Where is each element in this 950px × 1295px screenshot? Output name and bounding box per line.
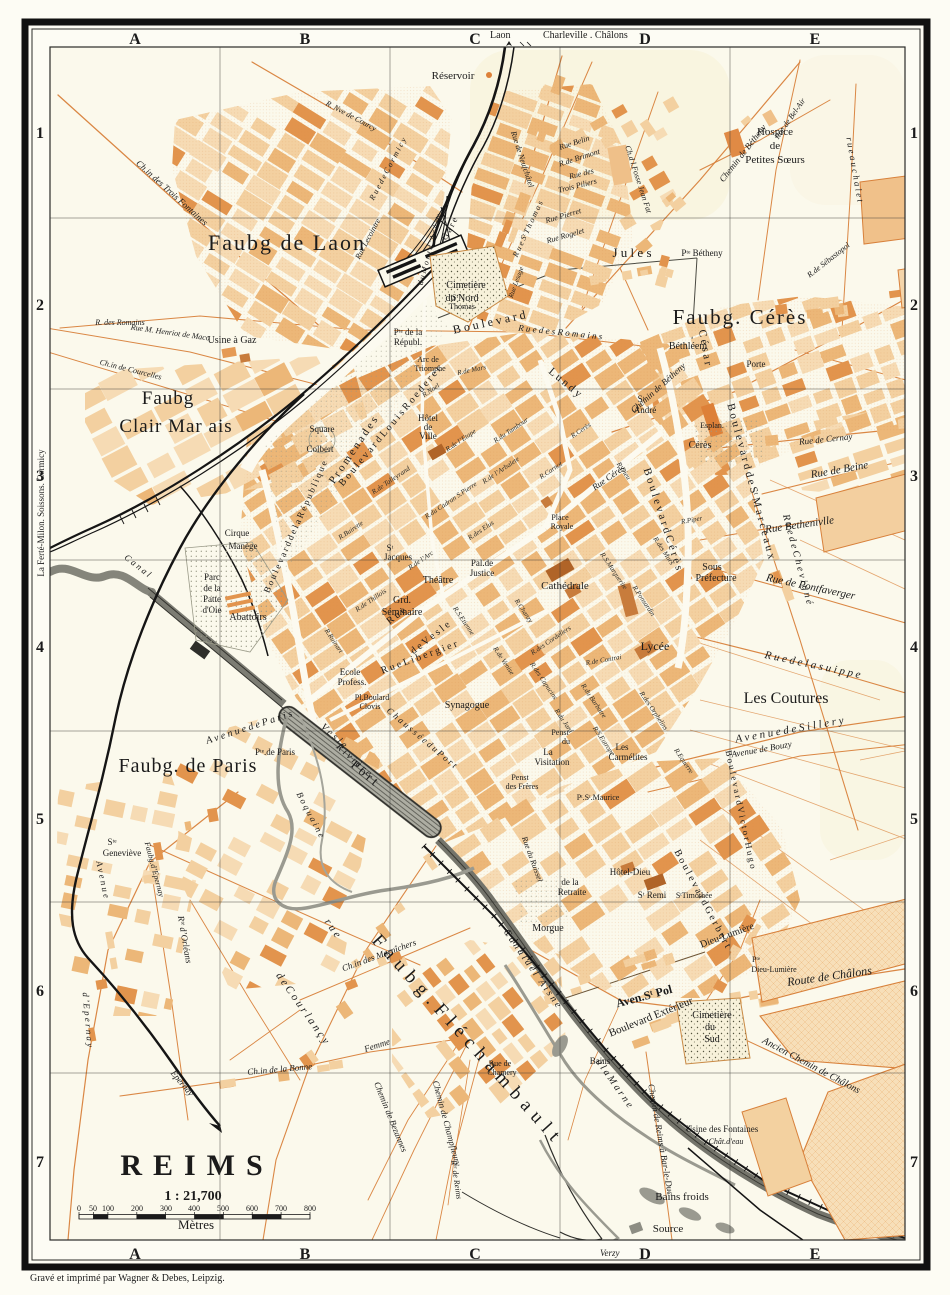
- svg-text:200: 200: [131, 1204, 143, 1213]
- svg-text:Profess.: Profess.: [338, 677, 367, 687]
- svg-text:1: 1: [910, 125, 918, 142]
- svg-text:Colbert: Colbert: [307, 444, 334, 454]
- svg-text:Faubg: Faubg: [142, 388, 195, 409]
- svg-text:de la: de la: [561, 877, 578, 887]
- svg-text:3: 3: [910, 468, 918, 485]
- svg-text:du: du: [562, 737, 570, 746]
- svg-text:1: 1: [36, 125, 44, 142]
- svg-text:R. des Romains: R. des Romains: [94, 318, 145, 327]
- svg-text:Cathédrale: Cathédrale: [541, 580, 589, 592]
- svg-text:des Frères: des Frères: [506, 782, 539, 791]
- svg-text:de: de: [770, 140, 781, 152]
- svg-text:Esplan.: Esplan.: [700, 421, 724, 430]
- svg-text:Gravé et imprimé par Wagner &: Gravé et imprimé par Wagner & Debes, Lei…: [30, 1273, 225, 1284]
- svg-text:Mètres: Mètres: [178, 1217, 214, 1232]
- svg-text:Pᵗᵉ de la: Pᵗᵉ de la: [394, 327, 423, 337]
- svg-text:Chât.d'eau: Chât.d'eau: [709, 1137, 744, 1146]
- svg-text:E: E: [810, 31, 821, 48]
- svg-text:D: D: [639, 1246, 651, 1263]
- svg-text:Arc de: Arc de: [417, 355, 439, 364]
- svg-text:Républ.: Républ.: [394, 337, 422, 347]
- svg-text:0: 0: [77, 1204, 81, 1213]
- svg-text:Faubg. Cérès: Faubg. Cérès: [673, 305, 808, 329]
- svg-text:B: B: [300, 1246, 311, 1263]
- svg-text:Théâtre: Théâtre: [423, 575, 454, 586]
- svg-text:B: B: [300, 31, 311, 48]
- svg-text:Faubg de Laon: Faubg de Laon: [208, 230, 366, 255]
- svg-text:Chamery: Chamery: [487, 1068, 516, 1077]
- svg-text:6: 6: [36, 983, 44, 1000]
- svg-text:Parc: Parc: [204, 572, 220, 582]
- svg-text:Porte: Porte: [747, 359, 766, 369]
- svg-text:A: A: [129, 31, 141, 48]
- svg-text:Pᵗ.Sᵗ.Maurice: Pᵗ.Sᵗ.Maurice: [577, 793, 620, 802]
- svg-text:Ville: Ville: [419, 431, 436, 441]
- svg-text:REIMS: REIMS: [120, 1149, 273, 1182]
- svg-text:Bains froids: Bains froids: [655, 1191, 708, 1203]
- svg-text:50: 50: [89, 1204, 97, 1213]
- svg-text:Ecole: Ecole: [340, 667, 361, 677]
- svg-text:Sud: Sud: [704, 1034, 720, 1045]
- svg-text:Petites Sœurs: Petites Sœurs: [745, 154, 805, 166]
- svg-text:Sᵗᵉ: Sᵗᵉ: [107, 837, 117, 847]
- svg-text:Manège: Manège: [229, 541, 258, 551]
- svg-text:Les Coutures: Les Coutures: [744, 690, 829, 707]
- svg-text:de la: de la: [203, 583, 220, 593]
- svg-text:Sᵗ Remi: Sᵗ Remi: [638, 890, 667, 900]
- svg-text:Cérès: Cérès: [689, 440, 712, 451]
- svg-text:Usine des Fontaines: Usine des Fontaines: [686, 1124, 759, 1134]
- svg-text:Lycée: Lycée: [641, 639, 670, 653]
- svg-text:Cirque: Cirque: [225, 528, 250, 538]
- svg-text:Verzy: Verzy: [600, 1248, 620, 1258]
- svg-text:Dieu-Lumière: Dieu-Lumière: [751, 965, 797, 974]
- svg-text:Pl.Boulard: Pl.Boulard: [355, 693, 389, 702]
- svg-text:Pal.de: Pal.de: [471, 558, 493, 568]
- svg-text:Cimetière: Cimetière: [446, 280, 486, 291]
- svg-text:600: 600: [246, 1204, 258, 1213]
- svg-text:1 : 21,700: 1 : 21,700: [164, 1189, 221, 1204]
- svg-text:du: du: [705, 1022, 715, 1033]
- svg-text:5: 5: [36, 811, 44, 828]
- svg-text:J u l e s: J u l e s: [613, 245, 652, 260]
- svg-text:7: 7: [36, 1154, 44, 1171]
- svg-text:Royale: Royale: [551, 522, 574, 531]
- svg-text:Pᵗᵉ Bétheny: Pᵗᵉ Bétheny: [681, 248, 723, 258]
- svg-text:E: E: [810, 1246, 821, 1263]
- svg-text:Morgue: Morgue: [532, 923, 564, 934]
- svg-text:800: 800: [304, 1204, 316, 1213]
- svg-text:Faubg. de Paris: Faubg. de Paris: [119, 755, 258, 777]
- svg-text:4: 4: [36, 639, 44, 656]
- svg-text:700: 700: [275, 1204, 287, 1213]
- svg-text:400: 400: [188, 1204, 200, 1213]
- svg-text:Penst: Penst: [511, 773, 529, 782]
- svg-text:Cimetière: Cimetière: [692, 1010, 732, 1021]
- svg-text:Pᵗᵉ: Pᵗᵉ: [752, 955, 760, 964]
- svg-text:Préfecture: Préfecture: [695, 573, 737, 584]
- svg-text:La Ferté-Milon. Soissons. Corm: La Ferté-Milon. Soissons. Cormicy: [36, 449, 46, 577]
- svg-text:Jacques: Jacques: [384, 552, 412, 562]
- svg-text:Abattoirs: Abattoirs: [229, 612, 266, 623]
- svg-text:2: 2: [910, 297, 918, 314]
- svg-text:A: A: [129, 1246, 141, 1263]
- svg-text:4: 4: [910, 639, 918, 656]
- svg-text:300: 300: [160, 1204, 172, 1213]
- svg-text:Les: Les: [616, 742, 629, 752]
- svg-text:7: 7: [910, 1154, 918, 1171]
- svg-text:Pᵗᵉ.de Paris: Pᵗᵉ.de Paris: [255, 747, 296, 757]
- svg-text:Hôtel-Dieu: Hôtel-Dieu: [610, 867, 651, 877]
- svg-text:d'Oie: d'Oie: [202, 605, 221, 615]
- svg-text:100: 100: [102, 1204, 114, 1213]
- svg-text:Thomas: Thomas: [449, 302, 475, 311]
- svg-text:Grd.: Grd.: [393, 595, 411, 606]
- svg-text:Visitation: Visitation: [535, 757, 570, 767]
- svg-text:Laon: Laon: [490, 30, 511, 41]
- svg-text:5: 5: [910, 811, 918, 828]
- svg-text:C: C: [469, 31, 481, 48]
- svg-text:Synagogue: Synagogue: [445, 700, 490, 711]
- svg-text:Square: Square: [310, 424, 335, 434]
- svg-text:6: 6: [910, 983, 918, 1000]
- svg-text:Geneviève: Geneviève: [103, 848, 141, 858]
- svg-text:SᵗTimothée: SᵗTimothée: [676, 891, 713, 900]
- svg-text:Sᵗ: Sᵗ: [452, 293, 458, 302]
- svg-text:Sous: Sous: [702, 562, 722, 573]
- svg-text:Triomphe: Triomphe: [414, 364, 446, 373]
- svg-text:Source: Source: [653, 1223, 684, 1235]
- svg-text:Patte: Patte: [203, 594, 221, 604]
- svg-text:Charleville . Châlons: Charleville . Châlons: [543, 30, 628, 41]
- svg-text:Clair Mar ais: Clair Mar ais: [119, 416, 232, 437]
- svg-text:C: C: [469, 1246, 481, 1263]
- svg-text:500: 500: [217, 1204, 229, 1213]
- svg-text:Usine à Gaz: Usine à Gaz: [208, 335, 257, 346]
- svg-text:Rue de: Rue de: [489, 1059, 512, 1068]
- svg-text:D: D: [639, 31, 651, 48]
- svg-text:Retraite: Retraite: [558, 887, 587, 897]
- svg-text:Clovis: Clovis: [360, 702, 381, 711]
- svg-text:Réservoir: Réservoir: [432, 70, 475, 82]
- svg-text:2: 2: [36, 297, 44, 314]
- svg-text:La: La: [543, 747, 553, 757]
- svg-text:Justice: Justice: [470, 568, 495, 578]
